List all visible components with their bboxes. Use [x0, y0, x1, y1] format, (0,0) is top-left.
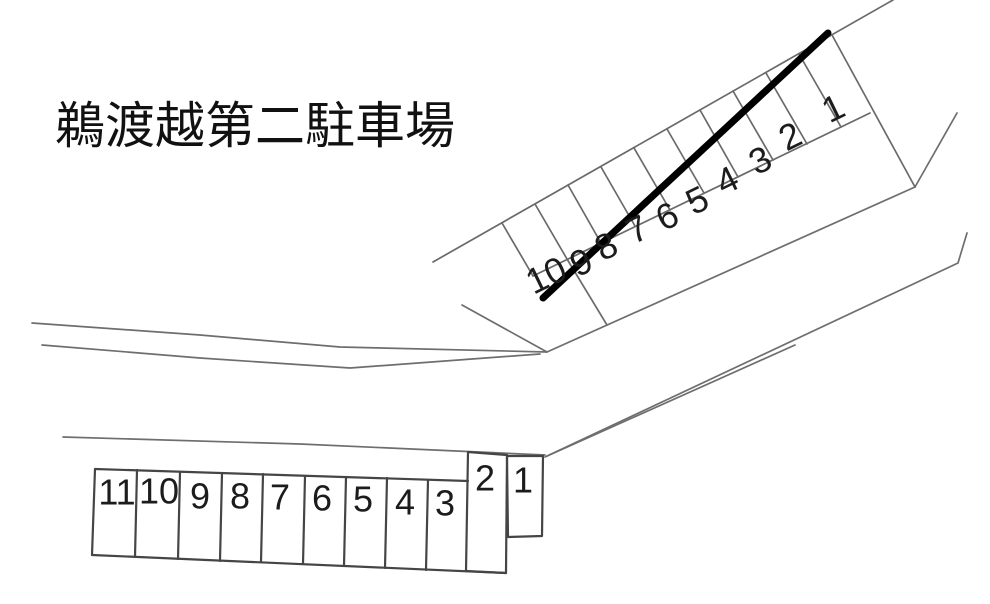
stall-number-upper-7: 7 — [619, 206, 655, 252]
junction-arm — [462, 305, 547, 352]
stall-number-lower-5: 5 — [353, 479, 373, 520]
stall-number-lower-2: 2 — [475, 458, 495, 499]
parking-map: 12345678910 1110987654321 鵜渡越第二駐車場 — [0, 0, 990, 604]
stall-number-lower-6: 6 — [312, 478, 332, 519]
stall-number-lower-7: 7 — [270, 477, 290, 518]
lower-block-left — [92, 469, 95, 555]
stall-number-lower-4: 4 — [395, 482, 415, 523]
stall-number-lower-9: 9 — [190, 476, 210, 517]
map-title: 鵜渡越第二駐車場 — [55, 98, 455, 154]
stall-number-upper-1: 1 — [815, 85, 851, 131]
lower-block-bottom — [92, 555, 506, 573]
stall-number-lower-11: 11 — [98, 472, 135, 513]
stall-number-upper-4: 4 — [709, 157, 745, 203]
diagonal-road-short — [545, 345, 795, 457]
road-lines — [32, 113, 967, 457]
road-edge-lower-left — [42, 345, 540, 368]
lot-bottom-boundary — [547, 187, 915, 352]
stall-number-lower-10: 10 — [139, 471, 179, 512]
stall-number-lower-3: 3 — [435, 483, 455, 524]
stall-number-upper-6: 6 — [649, 193, 685, 239]
stall-number-lower-8: 8 — [230, 476, 250, 517]
upper-stall-dividers — [502, 35, 915, 276]
road-edge-upper-left — [32, 323, 547, 352]
stall-number-lower-1: 1 — [513, 460, 533, 501]
upper-parking-row: 12345678910 — [433, 0, 915, 302]
corner-tick — [915, 113, 957, 187]
parking-map-drawing: 12345678910 1110987654321 鵜渡越第二駐車場 — [0, 0, 990, 604]
lower-parking-row: 1110987654321 — [92, 452, 543, 573]
stall-number-upper-5: 5 — [679, 177, 715, 223]
